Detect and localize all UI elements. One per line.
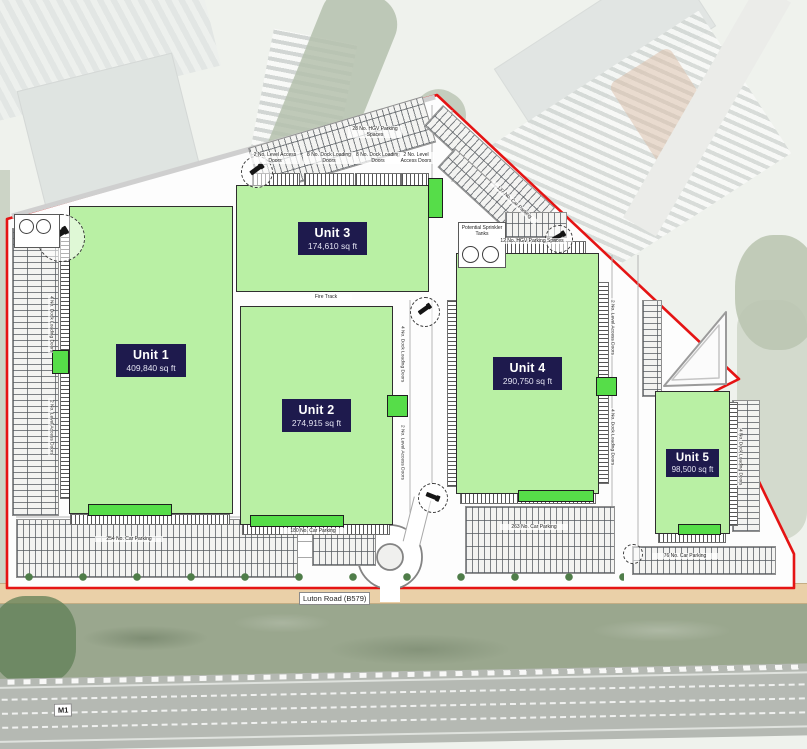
- sprinkler-tank-icon: [482, 246, 499, 263]
- unit-3-label: Unit 3 174,610 sq ft: [298, 222, 367, 255]
- loading-strip: [52, 350, 69, 374]
- unit-2-name: Unit 2: [292, 403, 341, 417]
- car-parking-label: 254 No. Car Parking: [95, 536, 163, 542]
- sprinkler-tank-icon: [19, 219, 34, 234]
- unit-4-name: Unit 4: [503, 361, 552, 375]
- hgv-parking-label: 28 No. HGV Parking Spaces: [348, 126, 402, 138]
- unit-4-label: Unit 4 290,750 sq ft: [493, 357, 562, 390]
- loading-strip: [596, 377, 617, 396]
- unit-2-building: Unit 2 274,915 sq ft: [240, 306, 393, 525]
- unit-1-area: 409,840 sq ft: [126, 363, 175, 373]
- loading-strip: [428, 178, 443, 218]
- site-entrance: [380, 586, 400, 602]
- loading-strip: [250, 515, 344, 527]
- door-count-label: 2 No. Level Access Doors: [48, 398, 53, 456]
- unit-1-building: Unit 1 409,840 sq ft: [69, 206, 233, 514]
- parking-lot-southeast: [632, 546, 776, 575]
- hgv-parking-unit4-east: [642, 300, 662, 397]
- door-count-label: 2 No. Level Access Doors: [399, 423, 404, 481]
- door-count-label: 2 No. Level Access Doors: [609, 298, 614, 356]
- turning-circle-icon: [623, 544, 643, 564]
- unit-5-label: Unit 5 98,500 sq ft: [666, 449, 720, 477]
- door-count-label: 8 No. Dock Loading Doors: [303, 152, 355, 164]
- car-parking-label: 180 No. Car Parking: [280, 528, 346, 534]
- unit-3-name: Unit 3: [308, 226, 357, 240]
- unit-2-label: Unit 2 274,915 sq ft: [282, 399, 351, 432]
- unit-4-building: Unit 4 290,750 sq ft: [456, 253, 599, 494]
- unit-5-building: Unit 5 98,500 sq ft: [655, 391, 730, 534]
- sprinkler-label: Potential Sprinkler Tanks: [459, 225, 505, 237]
- unit-3-building: Unit 3 174,610 sq ft: [236, 185, 429, 292]
- parking-lot-unit4-south: [465, 506, 615, 574]
- unit-5-area: 98,500 sq ft: [672, 465, 714, 474]
- site-plan: Unit 1 409,840 sq ft Unit 2 274,915 sq f…: [0, 0, 807, 749]
- car-parking-label: 263 No. Car Parking: [500, 524, 568, 530]
- unit-2-area: 274,915 sq ft: [292, 418, 341, 428]
- loading-strip: [518, 490, 594, 502]
- unit-3-area: 174,610 sq ft: [308, 241, 357, 251]
- door-count-label: 4 No. Dock Loading Doors: [48, 295, 53, 353]
- unit-5-name: Unit 5: [672, 452, 714, 464]
- door-count-label: 2 No. Level Access Doors: [250, 152, 300, 164]
- loading-strip: [88, 504, 172, 516]
- door-count-label: 8 No. Dock Loading Doors: [354, 152, 402, 164]
- tree-row: [24, 572, 624, 582]
- door-count-label: 4 No. Dock Loading Doors: [399, 325, 404, 383]
- unit-1-label: Unit 1 409,840 sq ft: [116, 344, 185, 377]
- hgv-parking-label: 12 No. HGV Parking Spaces: [498, 238, 566, 244]
- car-parking-label: 76 No. Car Parking: [652, 553, 718, 559]
- turning-circle-icon: [410, 297, 440, 327]
- sprinkler-tank-icon: [462, 246, 479, 263]
- loading-strip: [678, 524, 721, 535]
- luton-road-label: Luton Road (B579): [299, 592, 370, 605]
- site-masterplan: M1 Luton Road (B579): [0, 0, 807, 749]
- loading-strip: [387, 395, 408, 417]
- unit-1-name: Unit 1: [126, 348, 175, 362]
- door-count-label: 4 No. Dock Loading Doors: [609, 408, 614, 466]
- door-count-label: 2 No. Level Access Doors: [398, 152, 434, 164]
- door-count-label: 4 No. Dock Loading Doors: [737, 428, 742, 486]
- fire-track-label: Fire Track: [300, 294, 352, 300]
- unit-4-area: 290,750 sq ft: [503, 376, 552, 386]
- sprinkler-tank-icon: [36, 219, 51, 234]
